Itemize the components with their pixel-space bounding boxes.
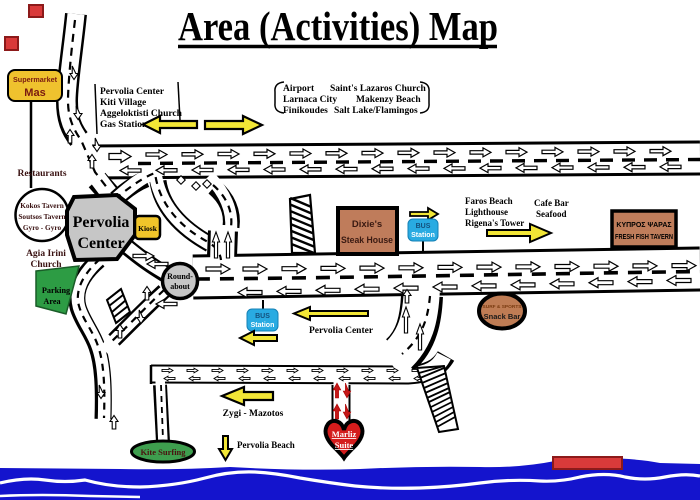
- svg-text:Marliz: Marliz: [332, 429, 357, 439]
- svg-text:BUS: BUS: [416, 223, 431, 230]
- svg-text:SURF & SPORTS: SURF & SPORTS: [483, 304, 523, 310]
- svg-text:Makenzy Beach: Makenzy Beach: [356, 95, 421, 105]
- svg-text:Lighthouse: Lighthouse: [465, 207, 508, 217]
- svg-text:Pervolia Beach: Pervolia Beach: [237, 440, 295, 450]
- svg-text:Station: Station: [251, 322, 275, 329]
- svg-text:Agia Irini: Agia Irini: [26, 249, 66, 259]
- svg-text:Pervolia Center: Pervolia Center: [309, 326, 374, 336]
- svg-text:Gyro - Gyro: Gyro - Gyro: [23, 223, 62, 232]
- svg-text:Dixie's: Dixie's: [352, 219, 382, 230]
- svg-text:Cafe Bar: Cafe Bar: [534, 198, 569, 208]
- svg-text:Larnaca City: Larnaca City: [283, 95, 337, 105]
- svg-text:Supermarket: Supermarket: [13, 75, 57, 84]
- svg-text:Pervolia: Pervolia: [73, 214, 130, 231]
- svg-text:Center: Center: [77, 235, 124, 252]
- svg-text:Area (Activities) Map: Area (Activities) Map: [178, 3, 498, 49]
- svg-text:Kokos Tavern: Kokos Tavern: [20, 201, 64, 210]
- svg-text:Kiosk: Kiosk: [138, 224, 158, 233]
- svg-text:Pervolia Center: Pervolia Center: [100, 87, 165, 97]
- svg-text:Snack Bar: Snack Bar: [484, 312, 521, 321]
- svg-text:Kite Surfing: Kite Surfing: [140, 447, 186, 457]
- svg-text:Restaurants: Restaurants: [17, 169, 66, 179]
- svg-text:Airport: Airport: [283, 84, 315, 94]
- svg-text:Area: Area: [43, 297, 60, 306]
- svg-text:BUS: BUS: [255, 313, 270, 320]
- svg-text:Aggeloktisti Church: Aggeloktisti Church: [100, 109, 183, 119]
- svg-text:Kiti Village: Kiti Village: [100, 98, 146, 108]
- svg-text:Finikoudes: Finikoudes: [283, 106, 328, 116]
- svg-text:FRESH FISH TAVERN: FRESH FISH TAVERN: [615, 234, 673, 241]
- svg-text:Salt Lake/Flamingos: Salt Lake/Flamingos: [334, 106, 418, 116]
- svg-text:Zygi - Mazotos: Zygi - Mazotos: [223, 409, 284, 419]
- svg-text:Steak House: Steak House: [341, 235, 393, 246]
- svg-text:Seafood: Seafood: [536, 209, 567, 219]
- svg-text:Rigena's Tower: Rigena's Tower: [465, 218, 524, 228]
- svg-text:Station: Station: [411, 232, 435, 239]
- svg-text:Round-: Round-: [167, 272, 193, 281]
- svg-text:Mas: Mas: [24, 87, 45, 99]
- svg-text:about: about: [170, 282, 190, 291]
- svg-text:Suite: Suite: [335, 440, 354, 450]
- svg-text:Soutsos Tavern: Soutsos Tavern: [18, 212, 65, 221]
- svg-text:Faros Beach: Faros Beach: [465, 196, 513, 206]
- svg-text:ΚΥΠΡΟΣ ΨΑΡΑΣ: ΚΥΠΡΟΣ ΨΑΡΑΣ: [616, 222, 671, 229]
- svg-text:Saint's Lazaros Church: Saint's Lazaros Church: [330, 84, 426, 94]
- svg-text:Parking: Parking: [42, 286, 71, 295]
- svg-text:Gas Station: Gas Station: [100, 120, 148, 130]
